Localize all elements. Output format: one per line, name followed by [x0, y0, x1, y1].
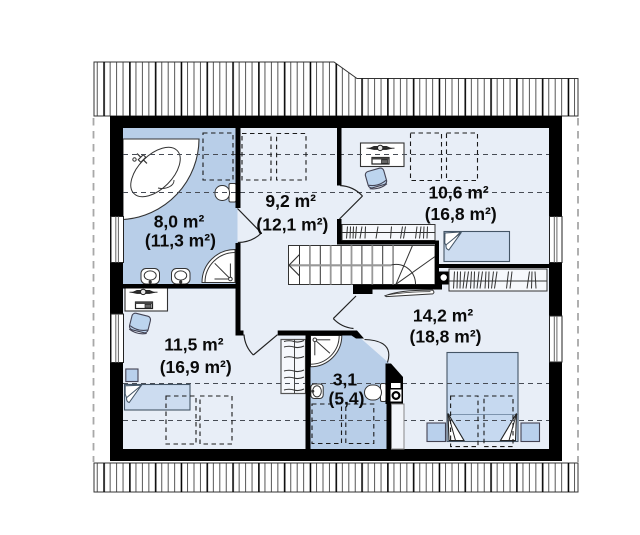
svg-text:(12,1 m²): (12,1 m²)	[256, 215, 328, 235]
svg-text:(18,8 m²): (18,8 m²)	[410, 327, 482, 347]
svg-text:10,6 m²: 10,6 m²	[428, 183, 488, 203]
svg-text:(16,9 m²): (16,9 m²)	[160, 357, 232, 377]
svg-text:14,2 m²: 14,2 m²	[413, 306, 473, 326]
svg-text:(16,8 m²): (16,8 m²)	[425, 204, 497, 224]
svg-text:8,0 m²: 8,0 m²	[154, 212, 205, 232]
svg-text:11,5 m²: 11,5 m²	[164, 335, 224, 355]
svg-text:(5,4): (5,4)	[329, 389, 365, 409]
svg-text:9,2 m²: 9,2 m²	[265, 191, 316, 211]
svg-text:3,1: 3,1	[333, 370, 358, 390]
svg-text:(11,3 m²): (11,3 m²)	[145, 231, 216, 251]
